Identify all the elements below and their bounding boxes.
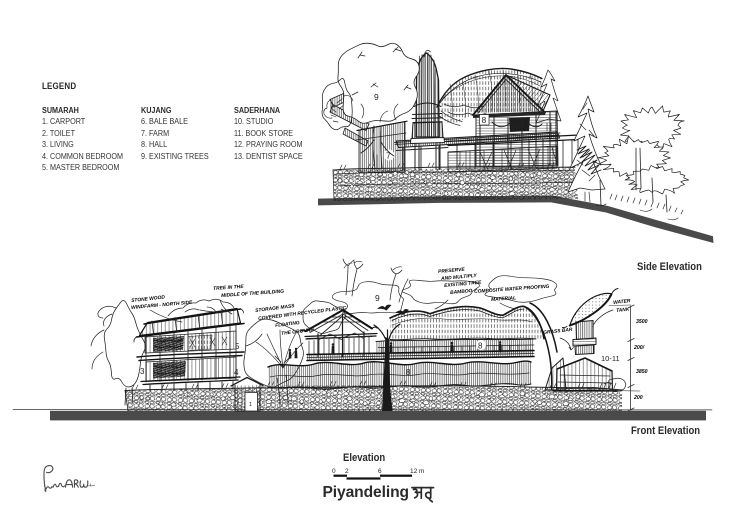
svg-text:5: 5	[235, 342, 240, 351]
svg-text:8: 8	[482, 115, 487, 125]
svg-text:10-11: 10-11	[601, 354, 620, 363]
svg-text:9: 9	[374, 92, 379, 102]
svg-text:8: 8	[478, 342, 483, 351]
svg-text:3: 3	[140, 367, 145, 376]
svg-text:4: 4	[234, 368, 239, 377]
svg-text:8: 8	[406, 368, 411, 377]
svg-text:9: 9	[375, 293, 380, 303]
svg-text:1: 1	[249, 402, 252, 408]
